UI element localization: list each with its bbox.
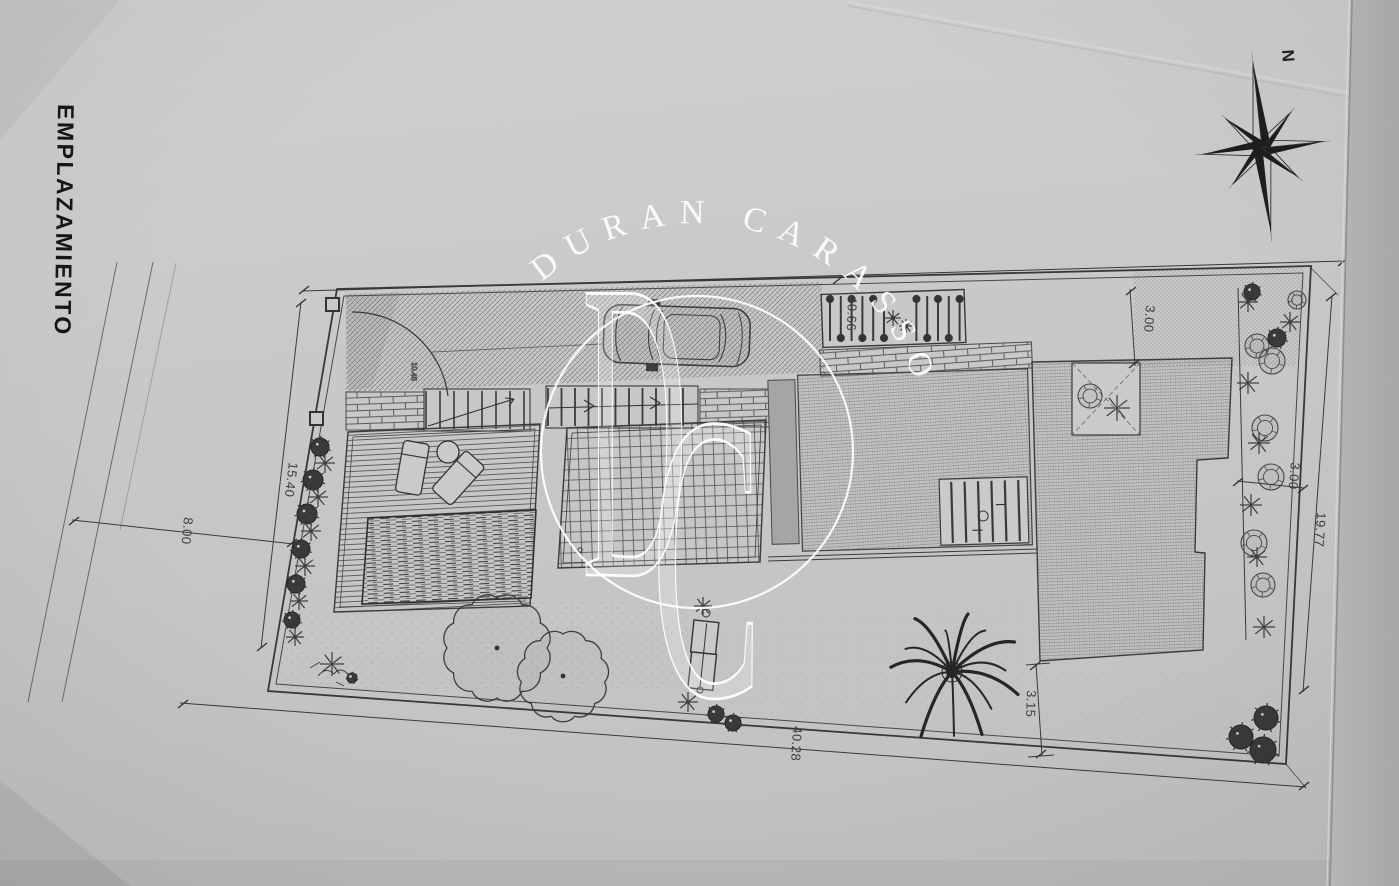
- photo-vignette: [0, 0, 1399, 886]
- scanned-site-plan-page: 10.45: [0, 0, 1399, 886]
- site-plan-scan: 10.45: [0, 0, 1399, 886]
